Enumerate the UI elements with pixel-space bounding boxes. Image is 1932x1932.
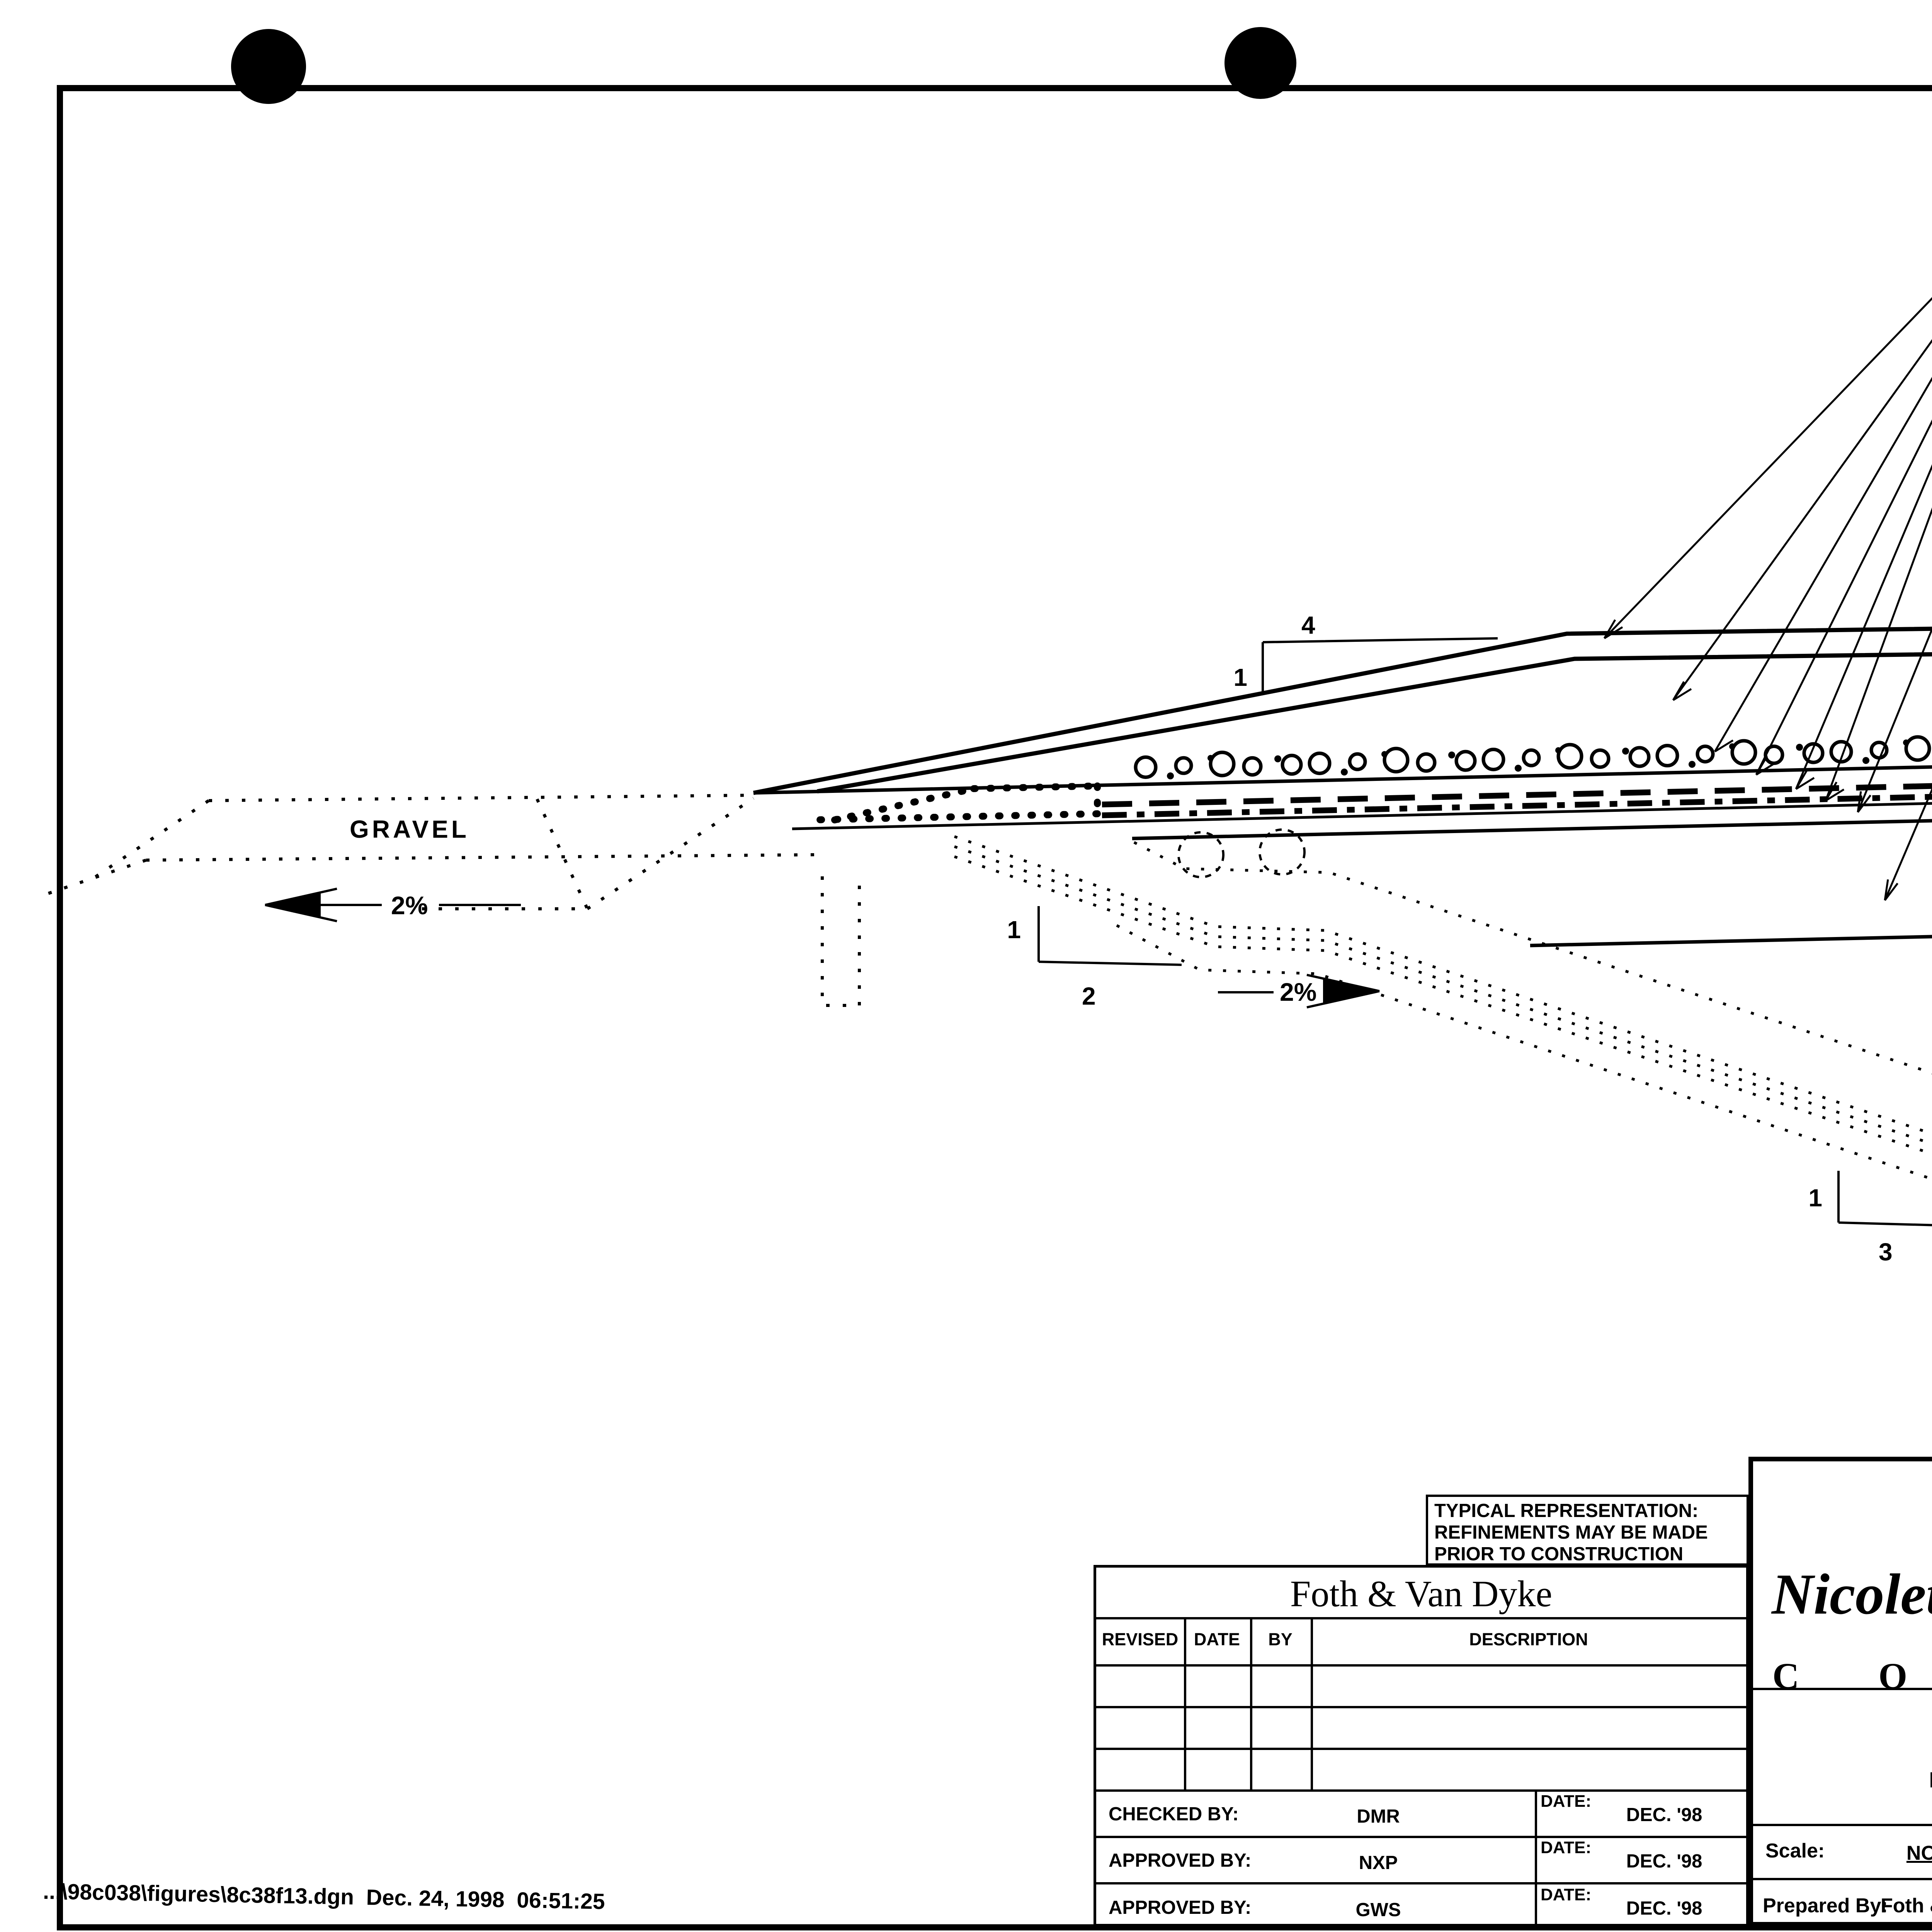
cobble-stone-icon <box>1906 737 1929 760</box>
slope-indicator-1-2 <box>1039 906 1182 965</box>
leader-topsoil <box>1604 294 1932 638</box>
revision-table: Foth & Van Dyke REVISED DATE BY DESCRIPT… <box>1094 1565 1749 1927</box>
grade-label-left: 2% <box>391 891 428 920</box>
cobble-stone-icon <box>1384 748 1408 772</box>
arrow-right-icon <box>1323 979 1379 1003</box>
cobble-stone-icon <box>1350 754 1365 769</box>
cobble-stone-icon <box>1592 750 1609 767</box>
figure-title-line2: AND FINAL COVER DETAIL 2/28 <box>1753 1795 1932 1821</box>
table-rule <box>1096 1617 1746 1619</box>
toe-wedge-dotted <box>537 799 587 909</box>
date-label: DATE: <box>1541 1838 1591 1857</box>
gravel-left-slant-dotted <box>88 801 209 882</box>
cobble-stone-icon <box>1136 757 1156 777</box>
col-header-description: DESCRIPTION <box>1311 1629 1747 1650</box>
cobble-stone-icon <box>1418 754 1435 771</box>
topsoil-surface-line <box>753 624 1932 793</box>
note-line: PRIOR TO CONSTRUCTION <box>1434 1543 1747 1565</box>
slope-bot-h: 3 <box>1879 1238 1893 1266</box>
cobble-stone-icon <box>1456 752 1475 770</box>
toe-wedge-dotted <box>587 798 753 909</box>
block-rule <box>1753 1824 1932 1826</box>
final-cover-layer-lines <box>753 624 1932 946</box>
slope-top-h: 4 <box>1301 611 1315 639</box>
note-line: REFINEMENTS MAY BE MADE <box>1434 1522 1747 1543</box>
anchor-trench-dotted <box>822 876 859 1005</box>
cobble-stone-icon <box>1167 772 1174 779</box>
cobble-stone-icon <box>1282 755 1301 774</box>
block-rule <box>1753 1878 1932 1880</box>
gravel-bottom-dotted <box>146 855 816 860</box>
cobble-stone-icon <box>1657 745 1677 765</box>
col-header-date: DATE <box>1184 1629 1250 1650</box>
table-rule <box>1096 1664 1746 1667</box>
cobble-stone-icon <box>1211 752 1234 776</box>
cobble-stone-icon <box>1341 769 1348 776</box>
cobble-stone-icon <box>1796 744 1803 751</box>
punch-holes <box>231 27 1932 104</box>
note-box: TYPICAL REPRESENTATION: REFINEMENTS MAY … <box>1426 1495 1749 1566</box>
table-rule <box>1096 1836 1746 1838</box>
cobble-stone-icon <box>1483 749 1503 769</box>
tailings-top-line <box>1530 929 1932 946</box>
drawing-sheet: GRAVEL 2% 2% 2% TAILINGS 6" TOP SOIL 24"… <box>0 0 1932 1932</box>
leader-drainage <box>1756 414 1932 775</box>
slope-indicator-1-3 <box>1838 1171 1932 1226</box>
figure-title-line1: REVISED PERIMETER TOP BERM <box>1753 1767 1932 1793</box>
cobble-stone-icon <box>1244 758 1261 775</box>
slope-mid-h: 2 <box>1082 982 1096 1010</box>
cobble-stone-icon <box>1176 758 1191 773</box>
table-rule <box>1096 1882 1746 1884</box>
cobble-stone-icon <box>1448 752 1455 759</box>
note-line: TYPICAL REPRESENTATION: <box>1434 1500 1747 1522</box>
table-rule <box>1096 1789 1746 1792</box>
table-rule <box>1535 1789 1537 1924</box>
liner-dotted <box>954 857 1932 1212</box>
block-rule <box>1753 1688 1932 1690</box>
leader-gcl <box>1858 542 1932 812</box>
table-rule <box>1096 1706 1746 1708</box>
company-word: COMPANY <box>1772 1655 1932 1697</box>
leader-geomembrane <box>1826 500 1932 801</box>
cobble-stone-icon <box>1689 761 1696 768</box>
col-header-revised: REVISED <box>1096 1629 1184 1650</box>
cobble-stone-icon <box>1622 748 1629 755</box>
date-label: DATE: <box>1541 1792 1591 1811</box>
table-rule <box>1096 1748 1746 1750</box>
liner-dotted <box>954 847 1932 1202</box>
cobble-stone-icon <box>1630 748 1649 766</box>
existing-grade-dotted <box>1134 842 1932 1146</box>
grading-bench-line <box>1132 813 1932 838</box>
approved-by-initials: GWS <box>1313 1899 1444 1921</box>
cobble-stone-icon <box>1862 757 1869 764</box>
cobble-row <box>1136 729 1932 779</box>
col-header-by: BY <box>1250 1629 1311 1650</box>
prepared-by-value: Foth & Van Dyke <box>1881 1894 1932 1917</box>
gravel-left-slant-dotted <box>39 860 146 896</box>
slope-top-v: 1 <box>1233 663 1247 691</box>
date-label: DATE: <box>1541 1885 1591 1905</box>
scale-label: Scale: <box>1765 1839 1825 1862</box>
approved-by-label: APPROVED BY: <box>1109 1850 1251 1871</box>
punch-hole-icon <box>231 29 306 104</box>
gravel-label: GRAVEL <box>350 815 469 843</box>
cobble-bottom-line <box>753 759 1932 793</box>
grade-label-middle: 2% <box>1280 978 1316 1006</box>
slope-bot-v: 1 <box>1808 1184 1822 1212</box>
arrow-left-icon <box>265 893 321 917</box>
figure-number: FIGURE 7.1-1 <box>1753 1712 1932 1745</box>
pipe-circle-icon <box>1179 832 1223 877</box>
approved-by-initials: NXP <box>1313 1852 1444 1874</box>
cobble-stone-icon <box>1697 746 1713 762</box>
gravel-top-dotted <box>209 795 753 801</box>
scale-value: NOT TO SCALE <box>1861 1842 1932 1865</box>
cobble-stone-icon <box>1524 750 1539 765</box>
checked-by-label: CHECKED BY: <box>1109 1803 1239 1825</box>
approved-by-label: APPROVED BY: <box>1109 1897 1251 1918</box>
leader-till <box>1673 335 1932 700</box>
cobble-stone-icon <box>1310 753 1330 773</box>
cobble-stone-icon <box>1558 745 1582 768</box>
slope-mid-v: 1 <box>1007 916 1021 944</box>
date-value: DEC. '98 <box>1595 1898 1734 1919</box>
cobble-stone-icon <box>1274 755 1281 762</box>
company-name-left: Nicolet <box>1772 1561 1932 1628</box>
firm-name: Foth & Van Dyke <box>1096 1572 1746 1615</box>
date-value: DEC. '98 <box>1595 1850 1734 1872</box>
checked-by-initials: DMR <box>1313 1806 1444 1827</box>
cobble-stone-icon <box>1515 765 1522 772</box>
liner-dotted <box>954 837 1932 1192</box>
existing-liner-dotted-lines <box>954 837 1932 1252</box>
punch-hole-icon <box>1225 27 1296 99</box>
leader-cobble <box>1715 372 1932 752</box>
cobble-stone-icon <box>1732 741 1755 764</box>
prepared-by-label: Prepared By: <box>1763 1894 1888 1917</box>
date-value: DEC. '98 <box>1595 1804 1734 1826</box>
title-block: Nicolet Minerals Mining for the Future C… <box>1748 1457 1932 1927</box>
